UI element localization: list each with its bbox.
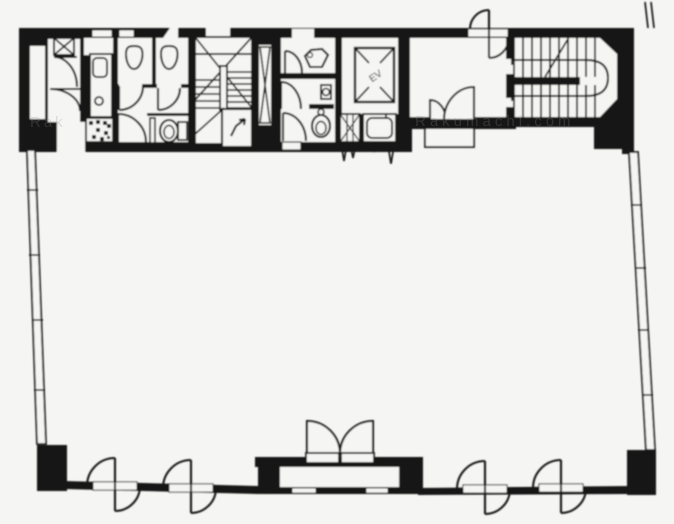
svg-text:Rak: Rak [30, 114, 66, 131]
svg-text:Rakumachi.com: Rakumachi.com [415, 113, 575, 130]
